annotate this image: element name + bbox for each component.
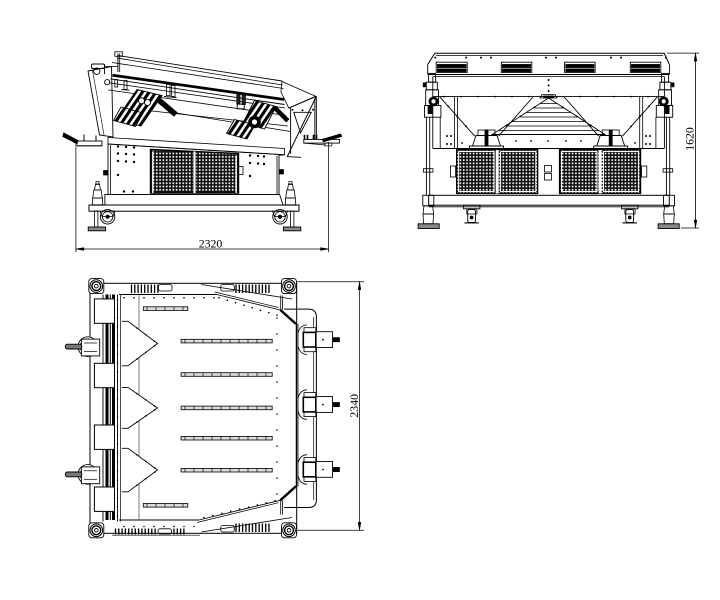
svg-text:2320: 2320 bbox=[199, 237, 223, 251]
svg-text:1620: 1620 bbox=[682, 127, 696, 151]
svg-text:2340: 2340 bbox=[347, 394, 361, 418]
